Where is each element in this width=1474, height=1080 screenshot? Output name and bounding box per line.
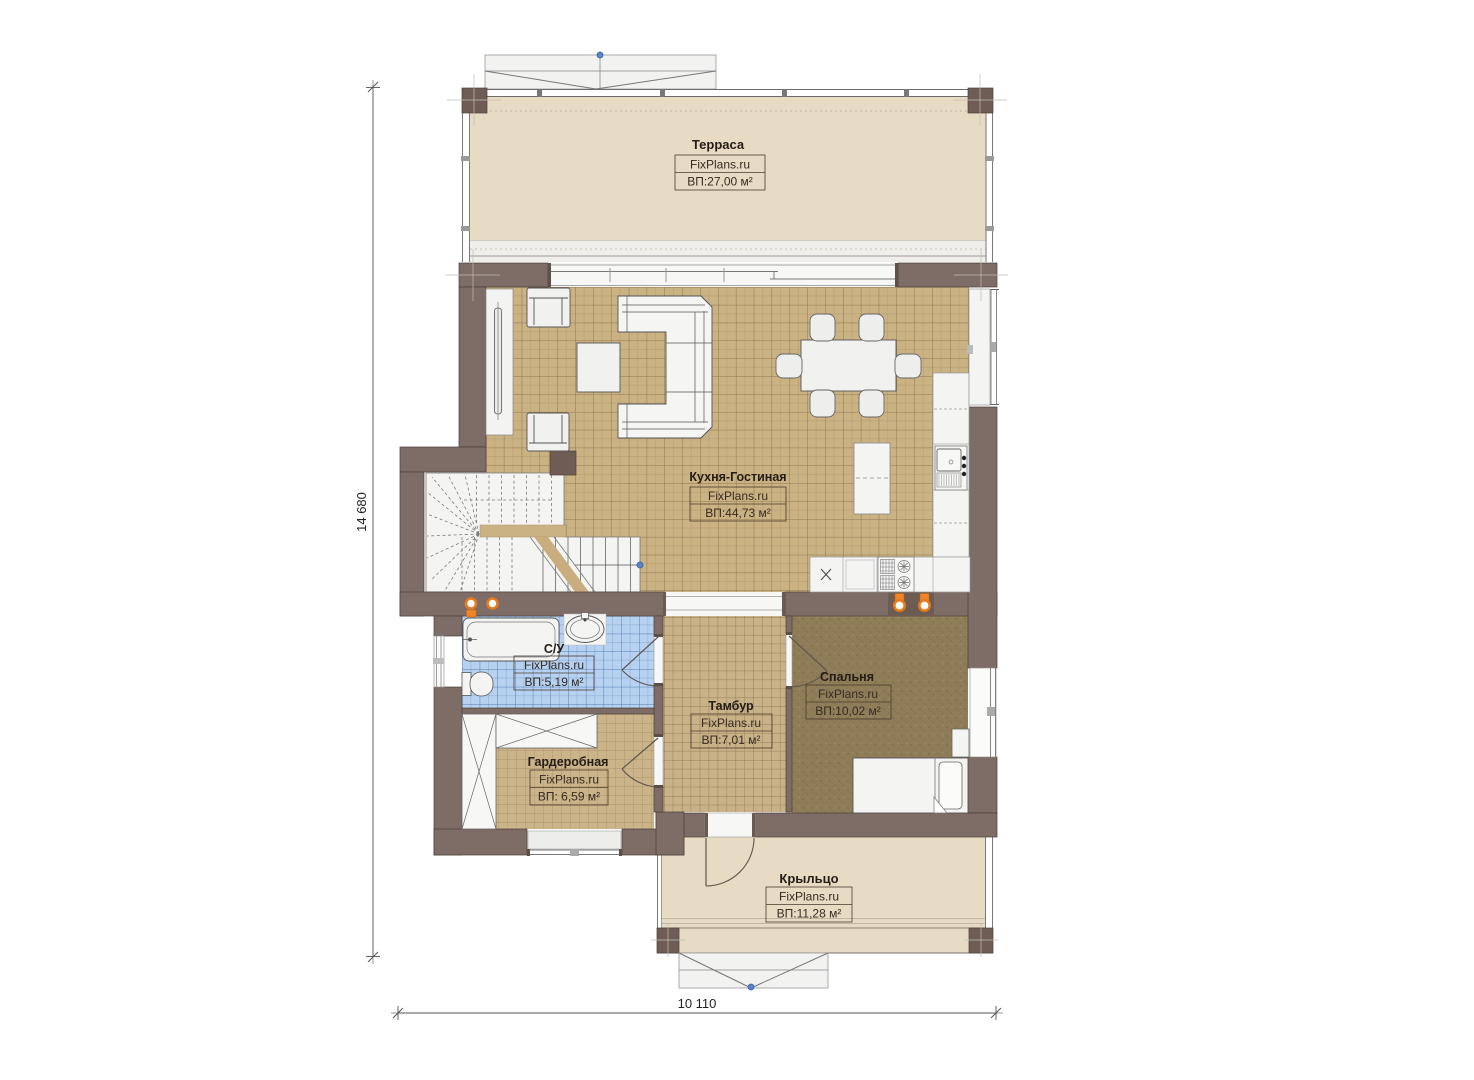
svg-text:ВП:10,02 м²: ВП:10,02 м² (815, 704, 881, 718)
svg-text:14 680: 14 680 (354, 492, 369, 532)
svg-text:ВП:7,01 м²: ВП:7,01 м² (702, 733, 761, 747)
svg-text:Гардеробная: Гардеробная (528, 755, 609, 769)
svg-text:С/У: С/У (544, 642, 565, 656)
svg-text:Терраса: Терраса (692, 137, 745, 152)
svg-text:ВП:44,73 м²: ВП:44,73 м² (705, 506, 771, 520)
svg-text:Кухня-Гостиная: Кухня-Гостиная (689, 470, 786, 484)
svg-text:Тамбур: Тамбур (708, 699, 754, 713)
svg-text:10 110: 10 110 (678, 996, 717, 1011)
svg-text:ВП:11,28 м²: ВП:11,28 м² (777, 907, 842, 921)
svg-text:Спальня: Спальня (820, 670, 874, 684)
svg-text:FixPlans.ru: FixPlans.ru (779, 890, 839, 904)
svg-text:ВП:5,19 м²: ВП:5,19 м² (525, 675, 584, 689)
svg-text:ВП: 6,59 м²: ВП: 6,59 м² (538, 790, 600, 804)
svg-text:FixPlans.ru: FixPlans.ru (690, 158, 750, 172)
svg-text:Крыльцо: Крыльцо (779, 871, 838, 886)
svg-text:FixPlans.ru: FixPlans.ru (818, 687, 878, 701)
svg-text:FixPlans.ru: FixPlans.ru (539, 773, 599, 787)
svg-text:ВП:27,00 м²: ВП:27,00 м² (687, 175, 753, 189)
svg-text:FixPlans.ru: FixPlans.ru (708, 489, 768, 503)
svg-text:FixPlans.ru: FixPlans.ru (701, 716, 761, 730)
svg-text:FixPlans.ru: FixPlans.ru (524, 658, 584, 672)
